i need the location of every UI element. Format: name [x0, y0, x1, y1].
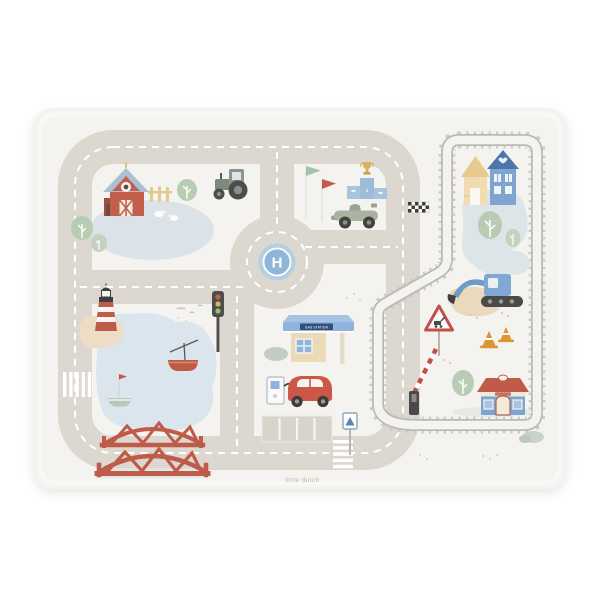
train-station	[477, 375, 529, 415]
gas-station-sign: GAS STATION	[305, 325, 329, 329]
finish-line	[408, 202, 429, 213]
helipad: H	[259, 244, 296, 281]
parking-lot	[262, 416, 332, 442]
play-mat: H	[33, 108, 567, 489]
gas-bush	[264, 347, 288, 361]
fence	[148, 186, 172, 202]
helipad-letter: H	[272, 255, 283, 272]
station-tree	[452, 370, 474, 396]
gas-canopy: GAS STATION	[283, 315, 354, 332]
podium-rank: 1	[366, 188, 369, 193]
brand-label: little dutch	[285, 477, 319, 484]
product-photo: H	[0, 0, 600, 600]
play-mat-canvas: H	[0, 0, 600, 600]
canopy-pole	[340, 331, 345, 364]
